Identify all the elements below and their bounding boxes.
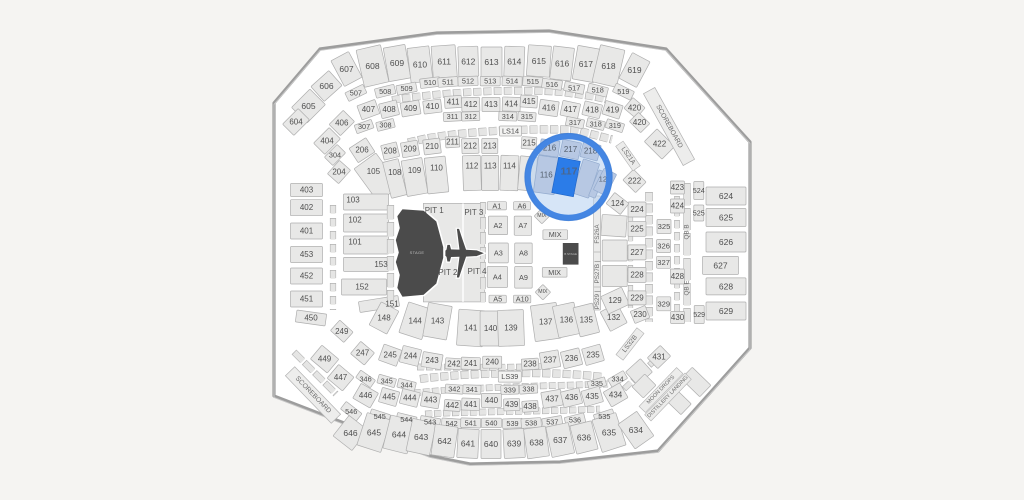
svg-text:642: 642	[437, 436, 451, 446]
svg-text:144: 144	[409, 316, 423, 325]
svg-text:513: 513	[484, 77, 496, 86]
svg-text:644: 644	[392, 430, 406, 440]
svg-text:PIT 2: PIT 2	[438, 268, 458, 277]
svg-text:PIT 3: PIT 3	[464, 208, 484, 217]
svg-text:535: 535	[598, 412, 610, 421]
svg-text:410: 410	[426, 102, 440, 111]
svg-text:640: 640	[484, 439, 498, 449]
svg-text:243: 243	[425, 356, 439, 365]
svg-text:213: 213	[483, 142, 497, 151]
svg-text:529: 529	[693, 310, 705, 319]
svg-text:452: 452	[300, 272, 314, 281]
svg-text:342: 342	[448, 385, 460, 394]
svg-text:PS29 |: PS29 |	[594, 290, 601, 309]
svg-text:209: 209	[403, 145, 417, 154]
svg-text:A5: A5	[493, 295, 502, 304]
svg-text:451: 451	[300, 295, 314, 304]
svg-text:428: 428	[671, 272, 685, 281]
svg-text:327: 327	[657, 258, 670, 267]
svg-text:217: 217	[564, 145, 578, 154]
svg-text:STAGE: STAGE	[410, 250, 425, 255]
svg-text:413: 413	[484, 100, 498, 109]
svg-text:403: 403	[300, 186, 314, 195]
svg-text:A10: A10	[516, 295, 529, 304]
svg-text:MIX: MIX	[549, 230, 562, 239]
svg-text:637: 637	[553, 435, 567, 445]
svg-text:A2: A2	[494, 221, 503, 230]
svg-text:329: 329	[657, 299, 670, 308]
svg-text:430: 430	[671, 313, 685, 322]
svg-text:A4: A4	[493, 272, 502, 281]
svg-text:415: 415	[522, 97, 536, 106]
svg-text:402: 402	[300, 203, 314, 212]
svg-text:450: 450	[304, 314, 318, 323]
svg-text:QB E: QB E	[684, 280, 691, 295]
svg-text:524: 524	[693, 186, 705, 195]
svg-text:241: 241	[464, 359, 478, 368]
svg-text:625: 625	[719, 213, 733, 223]
svg-text:312: 312	[465, 112, 477, 121]
svg-text:419: 419	[606, 105, 620, 114]
svg-text:541: 541	[465, 419, 477, 428]
svg-text:230: 230	[633, 310, 647, 319]
svg-text:341: 341	[466, 385, 478, 394]
svg-text:212: 212	[464, 142, 478, 151]
svg-text:414: 414	[505, 100, 519, 109]
svg-text:308: 308	[379, 120, 391, 129]
svg-text:326: 326	[657, 242, 670, 251]
svg-text:416: 416	[542, 104, 556, 113]
svg-text:112: 112	[466, 162, 479, 171]
svg-text:210: 210	[425, 142, 439, 151]
svg-text:439: 439	[505, 400, 519, 409]
svg-text:536: 536	[569, 415, 581, 424]
svg-text:545: 545	[374, 412, 386, 421]
svg-text:538: 538	[525, 419, 537, 428]
svg-text:140: 140	[484, 324, 498, 333]
svg-text:612: 612	[461, 57, 475, 67]
svg-text:542: 542	[446, 419, 458, 428]
svg-text:420: 420	[633, 118, 647, 127]
svg-text:307: 307	[358, 122, 370, 131]
svg-text:105: 105	[367, 167, 381, 176]
svg-text:325: 325	[658, 222, 671, 231]
svg-text:626: 626	[719, 237, 733, 247]
svg-text:608: 608	[365, 61, 379, 71]
svg-text:616: 616	[555, 59, 569, 69]
svg-text:A6: A6	[518, 201, 527, 210]
svg-text:314: 314	[502, 112, 514, 121]
svg-text:237: 237	[543, 355, 557, 364]
svg-text:206: 206	[355, 146, 369, 155]
svg-text:101: 101	[348, 238, 362, 247]
svg-text:424: 424	[671, 202, 685, 211]
svg-text:627: 627	[713, 260, 727, 270]
svg-text:516: 516	[546, 80, 558, 89]
svg-text:437: 437	[545, 394, 559, 403]
svg-text:339: 339	[504, 385, 516, 394]
svg-text:546: 546	[345, 407, 357, 416]
svg-text:151: 151	[385, 300, 399, 309]
svg-text:215: 215	[522, 139, 536, 148]
svg-text:638: 638	[529, 438, 543, 448]
svg-text:245: 245	[384, 351, 398, 360]
svg-text:LS39: LS39	[501, 372, 518, 381]
svg-text:152: 152	[355, 283, 369, 292]
svg-text:617: 617	[579, 59, 593, 69]
svg-text:418: 418	[586, 105, 600, 114]
svg-text:MIX: MIX	[548, 268, 561, 277]
svg-text:247: 247	[356, 349, 370, 358]
svg-text:109: 109	[408, 166, 422, 175]
svg-text:604: 604	[289, 118, 303, 127]
svg-text:517: 517	[568, 83, 580, 92]
svg-text:515: 515	[527, 77, 539, 86]
svg-text:139: 139	[504, 324, 518, 333]
svg-text:411: 411	[447, 97, 460, 106]
svg-text:525: 525	[693, 209, 705, 218]
svg-text:417: 417	[564, 105, 578, 114]
svg-text:345: 345	[381, 376, 393, 385]
svg-text:645: 645	[367, 428, 381, 438]
svg-text:609: 609	[390, 58, 404, 68]
svg-text:PIT 1: PIT 1	[425, 206, 445, 215]
svg-text:311: 311	[447, 112, 459, 121]
svg-text:211: 211	[446, 138, 459, 147]
svg-text:204: 204	[332, 168, 346, 177]
svg-text:519: 519	[617, 87, 629, 96]
svg-text:634: 634	[629, 425, 643, 435]
svg-text:409: 409	[404, 104, 418, 113]
svg-text:431: 431	[652, 353, 666, 362]
svg-text:A7: A7	[518, 221, 527, 230]
svg-text:435: 435	[586, 392, 600, 401]
svg-text:420: 420	[628, 104, 642, 113]
svg-text:132: 132	[607, 313, 621, 322]
svg-text:540: 540	[485, 419, 497, 428]
svg-text:643: 643	[414, 432, 428, 442]
svg-text:240: 240	[486, 358, 500, 367]
svg-text:225: 225	[630, 224, 644, 233]
svg-text:114: 114	[503, 162, 516, 171]
svg-text:436: 436	[565, 393, 579, 402]
svg-text:537: 537	[546, 417, 558, 426]
svg-text:423: 423	[671, 183, 685, 192]
svg-text:639: 639	[507, 439, 521, 449]
svg-text:512: 512	[462, 77, 474, 86]
svg-text:117: 117	[561, 166, 578, 178]
svg-text:346: 346	[360, 374, 372, 383]
svg-text:103: 103	[346, 196, 360, 205]
svg-text:113: 113	[484, 162, 497, 171]
svg-text:443: 443	[424, 396, 438, 405]
svg-text:615: 615	[532, 56, 546, 66]
svg-text:611: 611	[437, 57, 451, 67]
svg-text:408: 408	[382, 105, 396, 114]
svg-text:148: 148	[377, 314, 391, 323]
svg-text:108: 108	[388, 168, 402, 177]
svg-text:A1: A1	[492, 201, 501, 210]
svg-text:334: 334	[612, 374, 624, 383]
svg-text:317: 317	[569, 118, 581, 127]
svg-text:229: 229	[630, 293, 644, 302]
svg-text:406: 406	[335, 119, 349, 128]
svg-text:635: 635	[602, 428, 616, 438]
svg-text:438: 438	[523, 402, 537, 411]
svg-text:LS14: LS14	[502, 127, 519, 136]
svg-text:135: 135	[580, 316, 594, 325]
svg-text:508: 508	[379, 87, 391, 96]
svg-text:116: 116	[540, 171, 553, 180]
svg-text:518: 518	[592, 86, 604, 95]
svg-text:401: 401	[300, 227, 314, 236]
svg-text:607: 607	[339, 64, 353, 74]
svg-text:514: 514	[506, 77, 518, 86]
svg-text:509: 509	[401, 84, 413, 93]
svg-text:A3: A3	[494, 248, 503, 257]
svg-text:304: 304	[329, 151, 341, 160]
svg-text:137: 137	[539, 318, 553, 327]
svg-text:129: 129	[608, 296, 622, 305]
svg-text:422: 422	[653, 140, 667, 149]
svg-text:235: 235	[586, 350, 600, 359]
svg-text:629: 629	[719, 306, 733, 316]
svg-text:511: 511	[442, 78, 454, 87]
svg-text:614: 614	[507, 57, 521, 67]
svg-text:624: 624	[719, 191, 733, 201]
svg-text:434: 434	[609, 390, 623, 399]
svg-text:440: 440	[485, 396, 499, 405]
svg-text:412: 412	[464, 100, 478, 109]
svg-text:MIX: MIX	[538, 289, 548, 295]
svg-text:628: 628	[719, 281, 733, 291]
svg-text:236: 236	[565, 354, 579, 363]
svg-text:224: 224	[630, 205, 644, 214]
svg-text:442: 442	[446, 401, 460, 410]
svg-text:447: 447	[334, 373, 348, 382]
svg-text:613: 613	[484, 57, 498, 67]
svg-text:338: 338	[522, 385, 534, 394]
svg-text:153: 153	[374, 260, 388, 269]
svg-text:QB B: QB B	[684, 224, 691, 239]
svg-text:543: 543	[424, 417, 436, 426]
svg-text:636: 636	[577, 433, 591, 443]
svg-text:PIT 4: PIT 4	[468, 267, 488, 276]
svg-text:319: 319	[609, 121, 621, 130]
svg-text:124: 124	[611, 199, 625, 208]
svg-text:FS26A: FS26A	[594, 224, 601, 244]
svg-text:444: 444	[403, 394, 417, 403]
svg-text:539: 539	[506, 419, 518, 428]
svg-text:441: 441	[464, 400, 478, 409]
svg-text:238: 238	[523, 360, 537, 369]
svg-text:318: 318	[590, 120, 602, 129]
svg-text:228: 228	[630, 270, 644, 279]
svg-text:641: 641	[461, 439, 475, 449]
svg-text:244: 244	[404, 351, 418, 360]
svg-text:PS27B |: PS27B |	[594, 260, 601, 283]
svg-text:242: 242	[447, 359, 461, 368]
svg-text:404: 404	[320, 137, 334, 146]
svg-text:A8: A8	[519, 249, 528, 258]
svg-text:446: 446	[359, 391, 373, 400]
svg-text:449: 449	[318, 355, 332, 364]
svg-text:A9: A9	[519, 273, 528, 282]
svg-text:344: 344	[401, 380, 413, 389]
svg-text:507: 507	[350, 88, 362, 97]
svg-text:110: 110	[430, 164, 443, 173]
svg-text:407: 407	[362, 105, 376, 114]
svg-text:510: 510	[424, 78, 436, 87]
svg-text:606: 606	[319, 81, 333, 91]
svg-text:227: 227	[630, 248, 644, 257]
svg-text:544: 544	[400, 415, 412, 424]
svg-text:335: 335	[591, 379, 603, 388]
svg-text:136: 136	[560, 316, 574, 325]
svg-text:143: 143	[431, 317, 445, 326]
svg-text:208: 208	[384, 147, 398, 156]
svg-text:646: 646	[343, 428, 357, 438]
svg-text:453: 453	[300, 250, 314, 259]
svg-text:102: 102	[348, 216, 362, 225]
svg-text:610: 610	[413, 60, 427, 70]
svg-text:605: 605	[301, 101, 315, 111]
svg-text:618: 618	[601, 61, 615, 71]
svg-text:249: 249	[335, 327, 349, 336]
svg-text:445: 445	[382, 392, 396, 401]
svg-text:315: 315	[521, 112, 533, 121]
svg-text:222: 222	[628, 177, 642, 186]
svg-text:B STAGE: B STAGE	[564, 252, 577, 256]
svg-text:141: 141	[464, 324, 478, 333]
svg-text:619: 619	[627, 65, 641, 75]
